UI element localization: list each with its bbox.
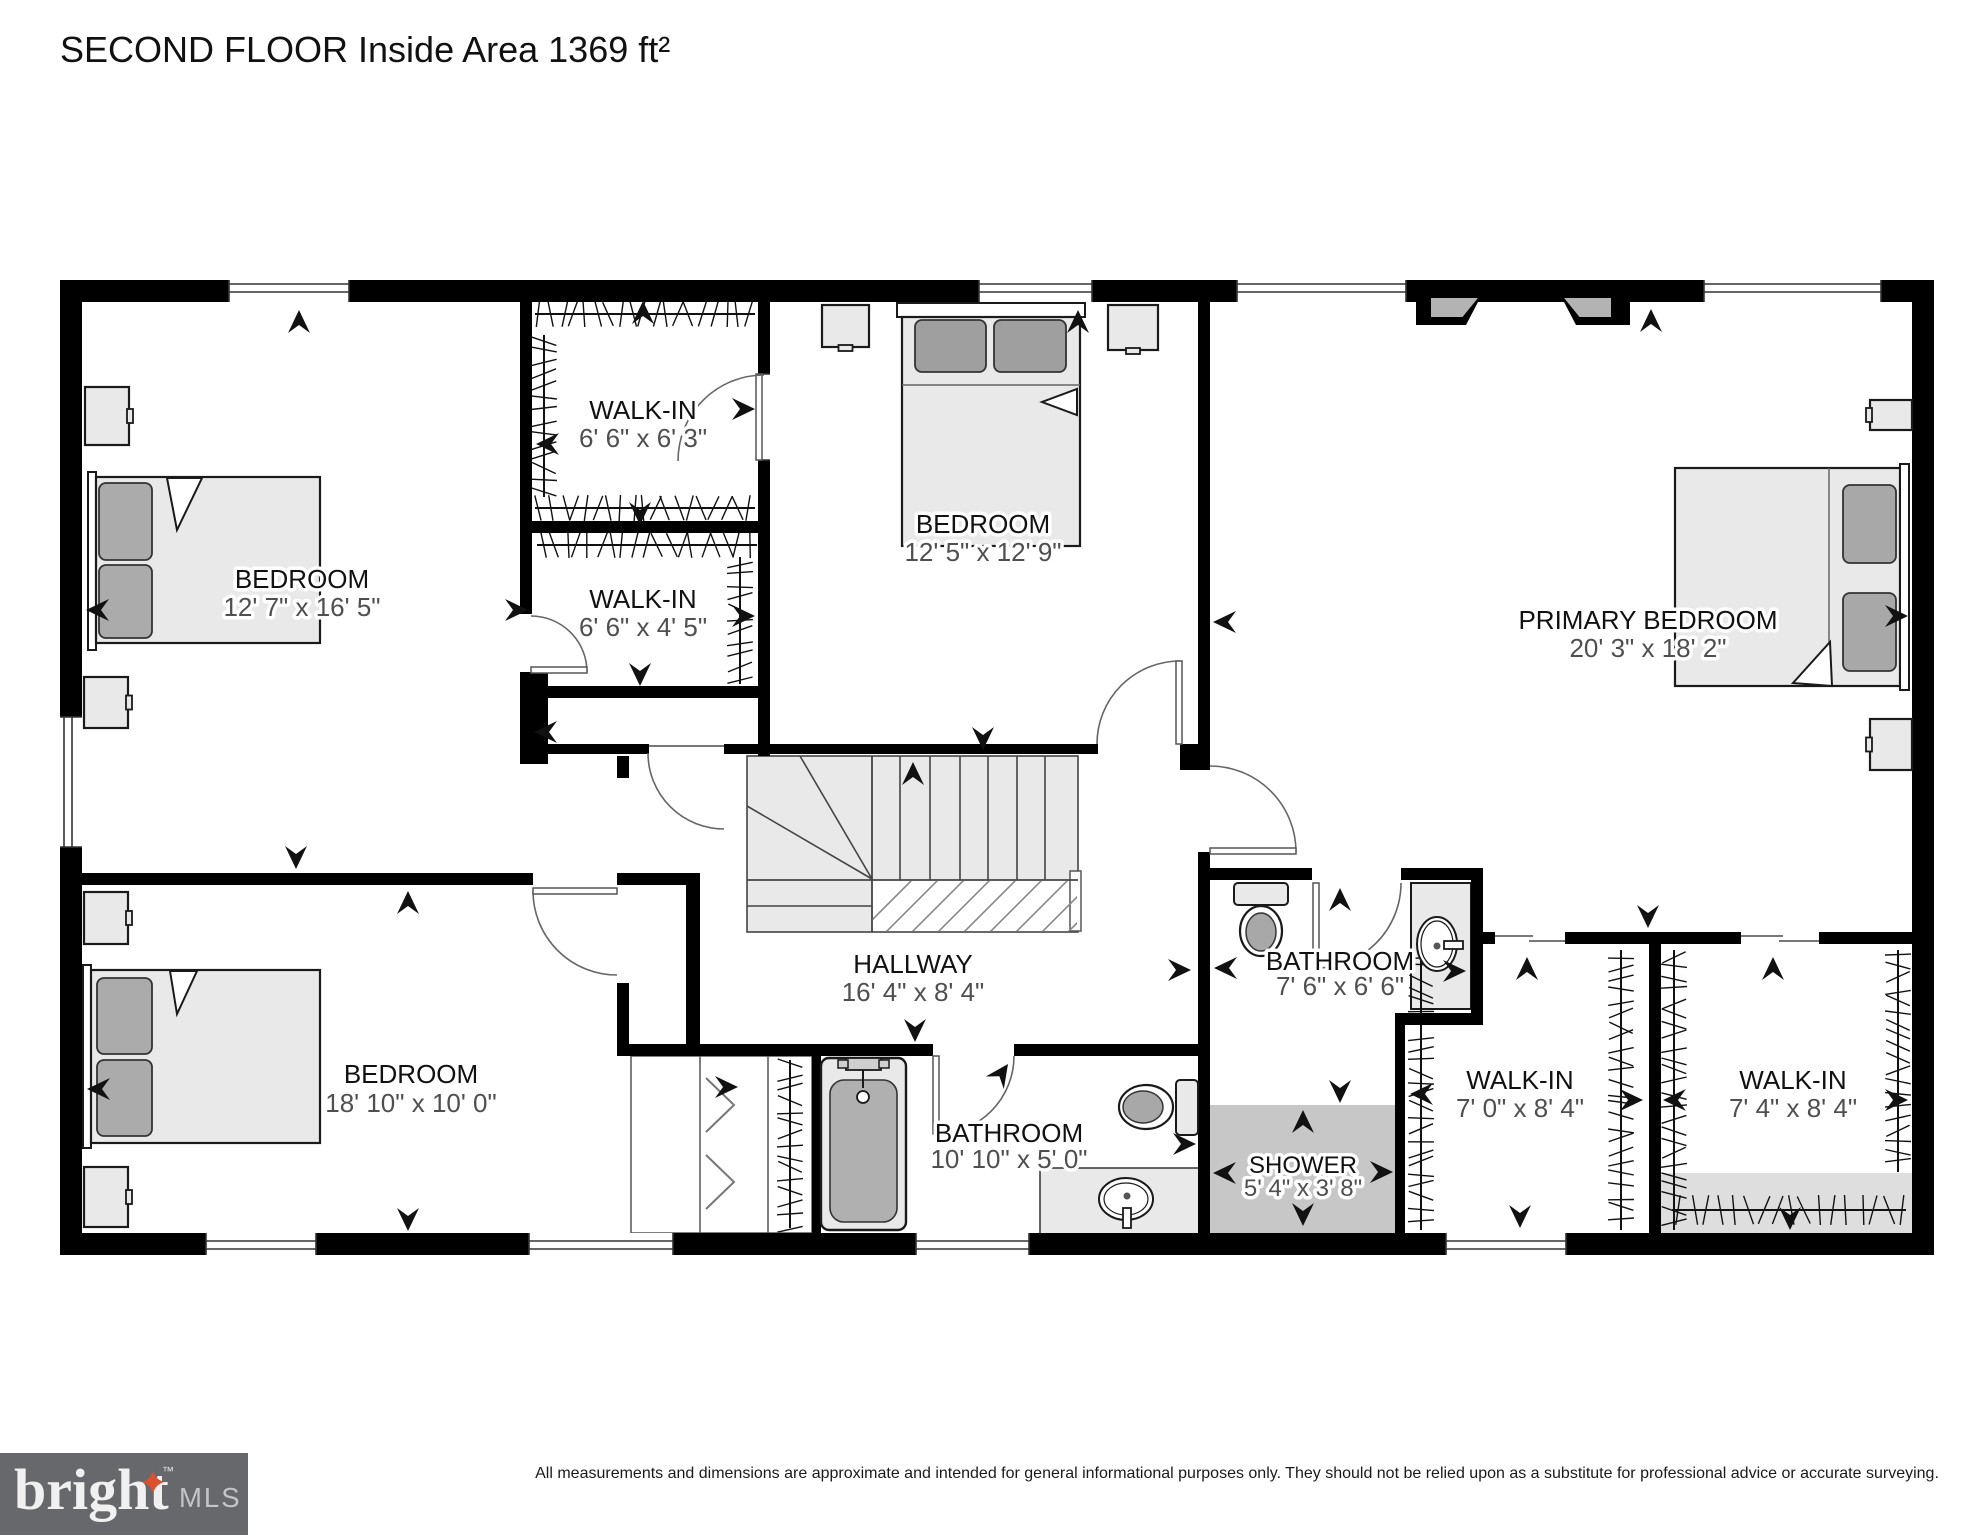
svg-text:20' 3" x 18' 2": 20' 3" x 18' 2" <box>1569 633 1726 663</box>
svg-text:MLS: MLS <box>179 1482 242 1513</box>
svg-text:16' 4" x 8' 4": 16' 4" x 8' 4" <box>842 977 985 1007</box>
svg-text:WALK-IN: WALK-IN <box>1739 1065 1846 1095</box>
svg-text:18' 10" x 10' 0": 18' 10" x 10' 0" <box>325 1088 497 1118</box>
svg-text:WALK-IN: WALK-IN <box>589 395 696 425</box>
svg-text:bright: bright <box>14 1457 169 1522</box>
svg-text:5' 4" x 3' 8": 5' 4" x 3' 8" <box>1244 1175 1362 1202</box>
svg-text:7' 6" x 6' 6": 7' 6" x 6' 6" <box>1276 971 1404 1001</box>
svg-text:All measurements and dimension: All measurements and dimensions are appr… <box>535 1465 1939 1482</box>
svg-text:7' 4" x 8' 4": 7' 4" x 8' 4" <box>1729 1093 1857 1123</box>
svg-text:BEDROOM: BEDROOM <box>235 564 369 594</box>
svg-text:™: ™ <box>162 1464 174 1478</box>
svg-text:WALK-IN: WALK-IN <box>1466 1065 1573 1095</box>
svg-text:12' 5" x 12' 9": 12' 5" x 12' 9" <box>904 537 1061 567</box>
svg-text:BEDROOM: BEDROOM <box>916 509 1050 539</box>
svg-text:SECOND FLOOR Inside Area 1369: SECOND FLOOR Inside Area 1369 ft² <box>60 29 670 70</box>
svg-text:6' 6" x 4' 5": 6' 6" x 4' 5" <box>579 612 707 642</box>
svg-text:7' 0" x 8' 4": 7' 0" x 8' 4" <box>1456 1093 1584 1123</box>
svg-text:WALK-IN: WALK-IN <box>589 584 696 614</box>
svg-text:10' 10" x 5' 0": 10' 10" x 5' 0" <box>930 1144 1087 1174</box>
svg-text:PRIMARY BEDROOM: PRIMARY BEDROOM <box>1518 605 1777 635</box>
svg-text:HALLWAY: HALLWAY <box>853 949 972 979</box>
svg-text:12' 7" x 16' 5": 12' 7" x 16' 5" <box>223 592 380 622</box>
svg-text:BEDROOM: BEDROOM <box>344 1059 478 1089</box>
svg-text:6' 6" x 6' 3": 6' 6" x 6' 3" <box>579 423 707 453</box>
